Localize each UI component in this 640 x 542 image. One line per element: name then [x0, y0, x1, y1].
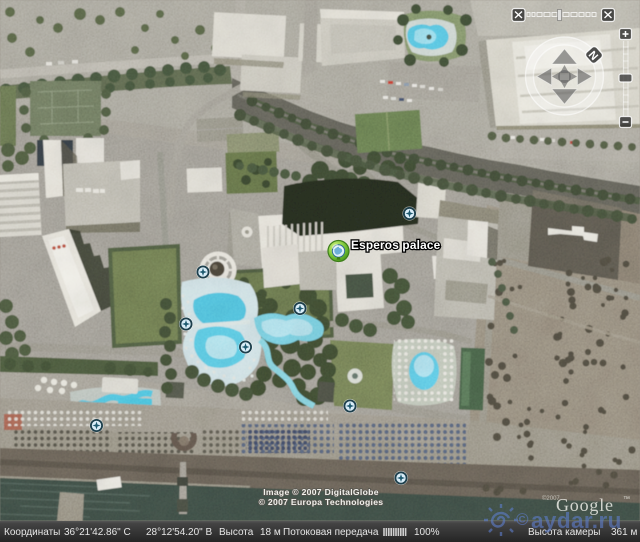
svg-text:Координаты: Координаты — [4, 527, 60, 538]
svg-text:Потоковая передача: Потоковая передача — [283, 527, 379, 538]
svg-text:™: ™ — [623, 496, 630, 503]
svg-text:©: © — [516, 510, 529, 529]
svg-text:28°12'54.20" В: 28°12'54.20" В — [146, 527, 213, 538]
svg-text:aydar.ru: aydar.ru — [531, 508, 622, 533]
svg-text:Esperos palace: Esperos palace — [351, 238, 441, 252]
svg-text:100%: 100% — [414, 527, 440, 538]
svg-text:18 м: 18 м — [260, 527, 281, 538]
svg-text:36°21'42.86" С: 36°21'42.86" С — [64, 527, 131, 538]
svg-text:Image © 2007 DigitalGlobe: Image © 2007 DigitalGlobe — [263, 487, 379, 497]
svg-text:Высота: Высота — [219, 527, 254, 538]
svg-text:© 2007 Europa Technologies: © 2007 Europa Technologies — [259, 497, 384, 507]
